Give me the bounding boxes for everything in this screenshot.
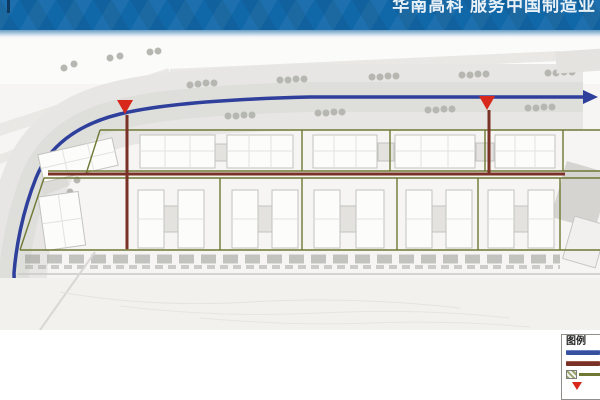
building-connector [340,206,356,232]
site-plan-canvas [0,38,600,330]
site-plan [0,38,600,330]
internal-road-swatch [566,361,600,366]
header-slogan: 华南高科 服务中国制造业 [392,0,596,16]
legend-box: 图例 [561,334,600,400]
building-connector [215,144,227,161]
document-page: 华南高科 服务中国制造业 [0,0,600,400]
building-connector [378,143,394,161]
description-text: 北至白杨地下公路，南至纬三路，东至经二路，西边紧靠绿化带。沿经二路设置主次出入口… [0,330,600,400]
building [38,191,85,250]
building-connector [432,206,446,232]
legend-item-entrance [566,380,600,391]
legend-item-green-belt [566,369,600,380]
green-belt-hatch-icon [566,370,577,379]
building-connector [164,206,178,232]
legend-item-main-road [566,347,600,358]
legend-title: 图例 [566,336,600,347]
building-connector [258,206,272,232]
entrance-marker-icon [572,382,582,390]
main-road-swatch [566,350,600,355]
building-connector [514,206,528,232]
green-belt-swatch [579,373,600,376]
header-banner: 华南高科 服务中国制造业 [0,0,600,30]
page-edge-tick [7,0,10,13]
legend-item-internal-road [566,358,600,369]
